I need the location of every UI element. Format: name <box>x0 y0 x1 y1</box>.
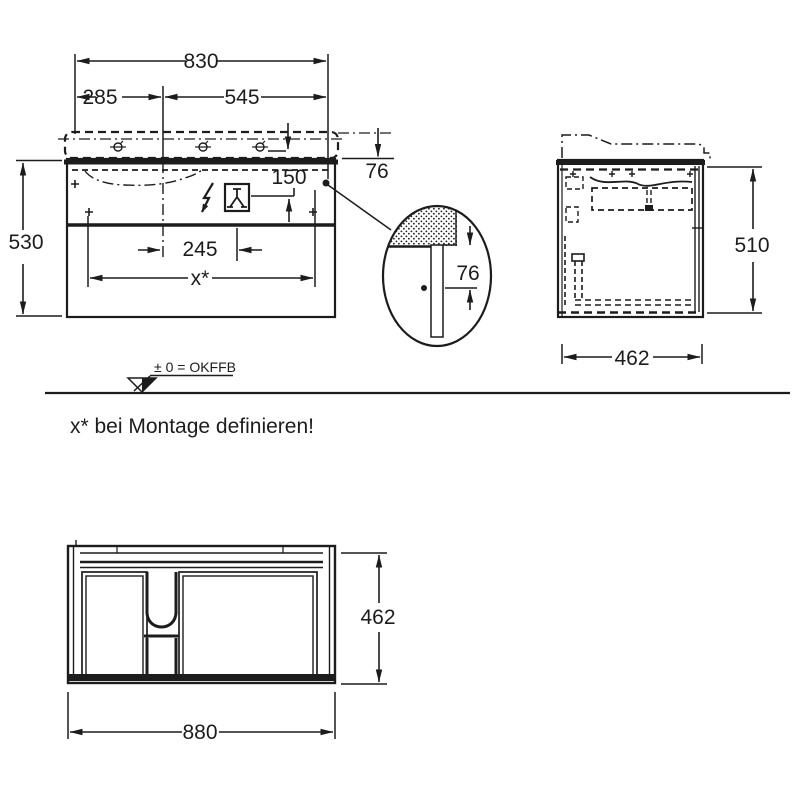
screw-circle-icon <box>110 141 126 151</box>
datum-triangle-icon <box>128 376 156 392</box>
dim-880: 880 <box>68 692 335 744</box>
dim-545: 545 <box>165 86 326 109</box>
dim-76-basin: 76 <box>338 128 394 183</box>
mounting-note: x* bei Montage definieren! <box>70 415 314 438</box>
dim-label-245: 245 <box>182 238 217 261</box>
side-view: 510 462 <box>556 135 770 370</box>
washbasin-side-outline <box>562 135 710 160</box>
hidden-bowl-contour <box>85 169 203 185</box>
dim-530: 530 <box>8 161 62 317</box>
dim-label-530: 530 <box>8 231 43 254</box>
basin-edge-pointer <box>268 123 288 151</box>
dim-label-880: 880 <box>182 721 217 744</box>
dim-label-76-basin: 76 <box>365 160 388 183</box>
dim-label-545: 545 <box>224 86 259 109</box>
dim-285: 285 <box>77 86 161 109</box>
wall-section-stipple <box>380 205 457 246</box>
dim-label-285: 285 <box>82 86 117 109</box>
cabinet-side <box>558 160 703 317</box>
ground-datum: ± 0 = OKFFB <box>45 359 790 393</box>
fixing-hole-dot <box>421 285 427 291</box>
dim-510: 510 <box>707 167 770 313</box>
plan-view: 462 880 <box>68 540 396 744</box>
dim-label-150: 150 <box>271 166 306 189</box>
dim-label-462-plan: 462 <box>360 606 395 629</box>
cabinet-plan <box>68 546 335 683</box>
detail-leader <box>323 180 392 231</box>
dim-label-76-detail: 76 <box>456 262 479 285</box>
dim-label-830: 830 <box>183 50 218 73</box>
plan-compartments <box>82 572 317 676</box>
siphon-cutout <box>144 572 179 675</box>
dim-462-plan: 462 <box>341 553 396 684</box>
side-hidden-details <box>558 166 702 313</box>
lightning-bolt-icon <box>202 183 213 212</box>
dim-label-x-star: x* <box>191 267 210 290</box>
basin-bottom-contour <box>590 177 692 186</box>
dim-label-510: 510 <box>734 234 769 257</box>
detail-callout: 76 <box>378 205 491 346</box>
screw-circle-icon <box>252 141 268 151</box>
dim-label-462-side: 462 <box>614 347 649 370</box>
vanity-unit-technical-drawing: 830 285 545 76 150 <box>0 0 800 800</box>
front-view: 830 285 545 76 150 <box>8 50 394 317</box>
technical-drawing-page: 830 285 545 76 150 <box>0 0 800 800</box>
dim-462-side: 462 <box>562 344 702 370</box>
screw-circle-icon <box>195 141 211 151</box>
side-fixing-marks <box>570 171 693 177</box>
tap-icon <box>225 184 249 211</box>
dim-245: 245 <box>138 228 262 261</box>
detail-content <box>378 205 457 337</box>
washbasin-outline <box>58 132 344 158</box>
datum-label: ± 0 = OKFFB <box>154 359 236 375</box>
front-edge-band <box>68 674 335 681</box>
dim-150: 150 <box>251 166 307 222</box>
dim-830: 830 <box>75 50 328 258</box>
